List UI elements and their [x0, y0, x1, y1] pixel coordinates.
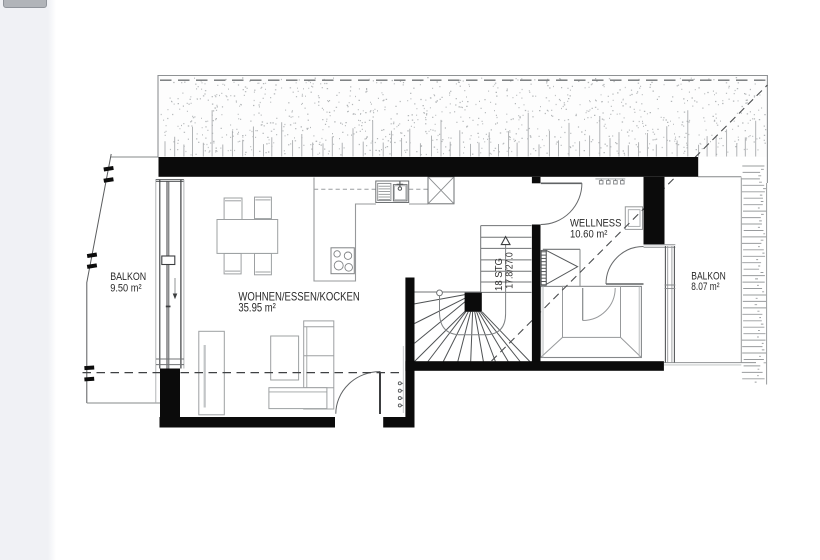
svg-text:8.07 m²: 8.07 m²	[691, 281, 720, 293]
svg-text:35.95 m²: 35.95 m²	[238, 302, 275, 315]
svg-text:10.60 m²: 10.60 m²	[570, 228, 608, 240]
svg-text:9.50 m²: 9.50 m²	[110, 282, 142, 294]
svg-text:17.8/27.0: 17.8/27.0	[505, 252, 516, 289]
svg-text:18 STG: 18 STG	[494, 258, 505, 291]
svg-text:BALKON: BALKON	[110, 271, 146, 283]
